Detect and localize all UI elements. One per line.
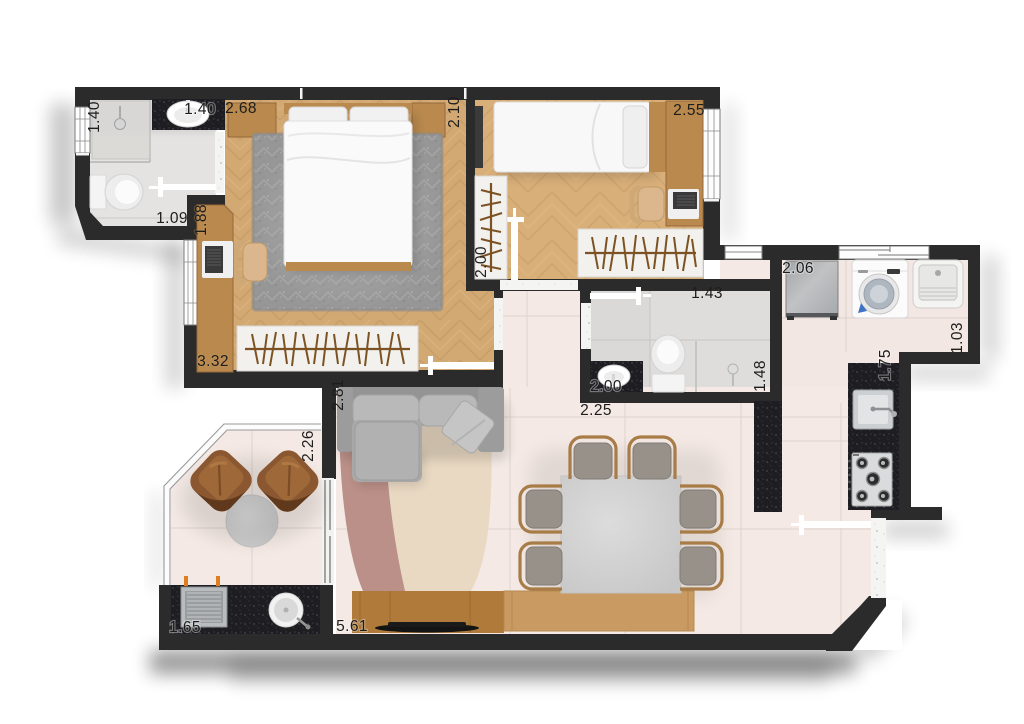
svg-text:2.26: 2.26: [300, 430, 317, 462]
svg-text:1.75: 1.75: [877, 349, 894, 381]
svg-text:2.55: 2.55: [673, 102, 705, 119]
svg-text:2.00: 2.00: [473, 246, 490, 278]
svg-text:1.88: 1.88: [193, 204, 210, 236]
svg-text:1.65: 1.65: [169, 619, 201, 636]
svg-text:1.48: 1.48: [752, 360, 769, 392]
svg-text:1.09: 1.09: [156, 210, 188, 227]
svg-text:2.10: 2.10: [446, 96, 463, 128]
svg-text:2.00: 2.00: [590, 378, 622, 395]
svg-text:2.25: 2.25: [580, 402, 612, 419]
svg-text:2.68: 2.68: [225, 100, 257, 117]
svg-text:1.03: 1.03: [949, 322, 966, 354]
svg-text:5.61: 5.61: [336, 618, 368, 635]
svg-text:2.81: 2.81: [330, 379, 347, 411]
svg-text:2.06: 2.06: [782, 260, 814, 277]
svg-text:1.40: 1.40: [86, 101, 103, 133]
svg-text:3.32: 3.32: [197, 353, 229, 370]
svg-text:1.43: 1.43: [691, 285, 723, 302]
svg-text:1.40: 1.40: [184, 101, 216, 118]
